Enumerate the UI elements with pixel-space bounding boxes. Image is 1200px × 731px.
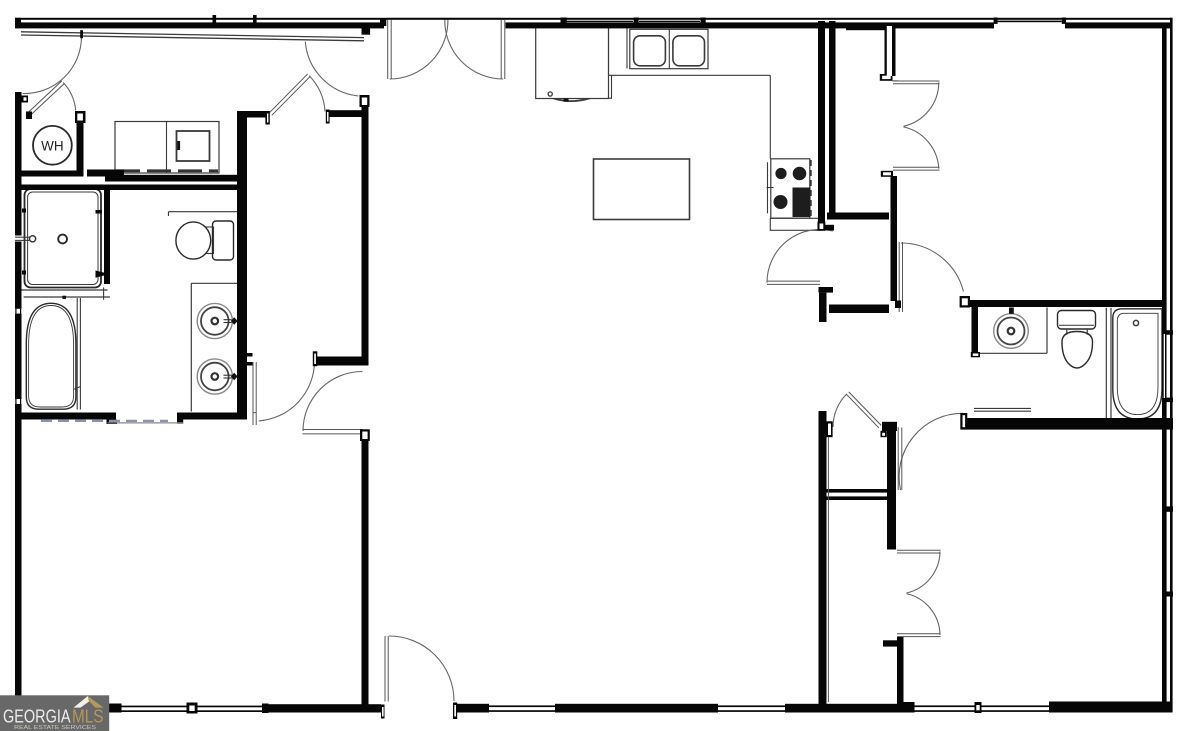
svg-text:REAL ESTATE SERVICES: REAL ESTATE SERVICES bbox=[14, 725, 97, 731]
svg-text:WH: WH bbox=[41, 139, 64, 154]
svg-text:GEORGIA: GEORGIA bbox=[3, 706, 71, 726]
svg-text:MLS: MLS bbox=[72, 706, 104, 726]
